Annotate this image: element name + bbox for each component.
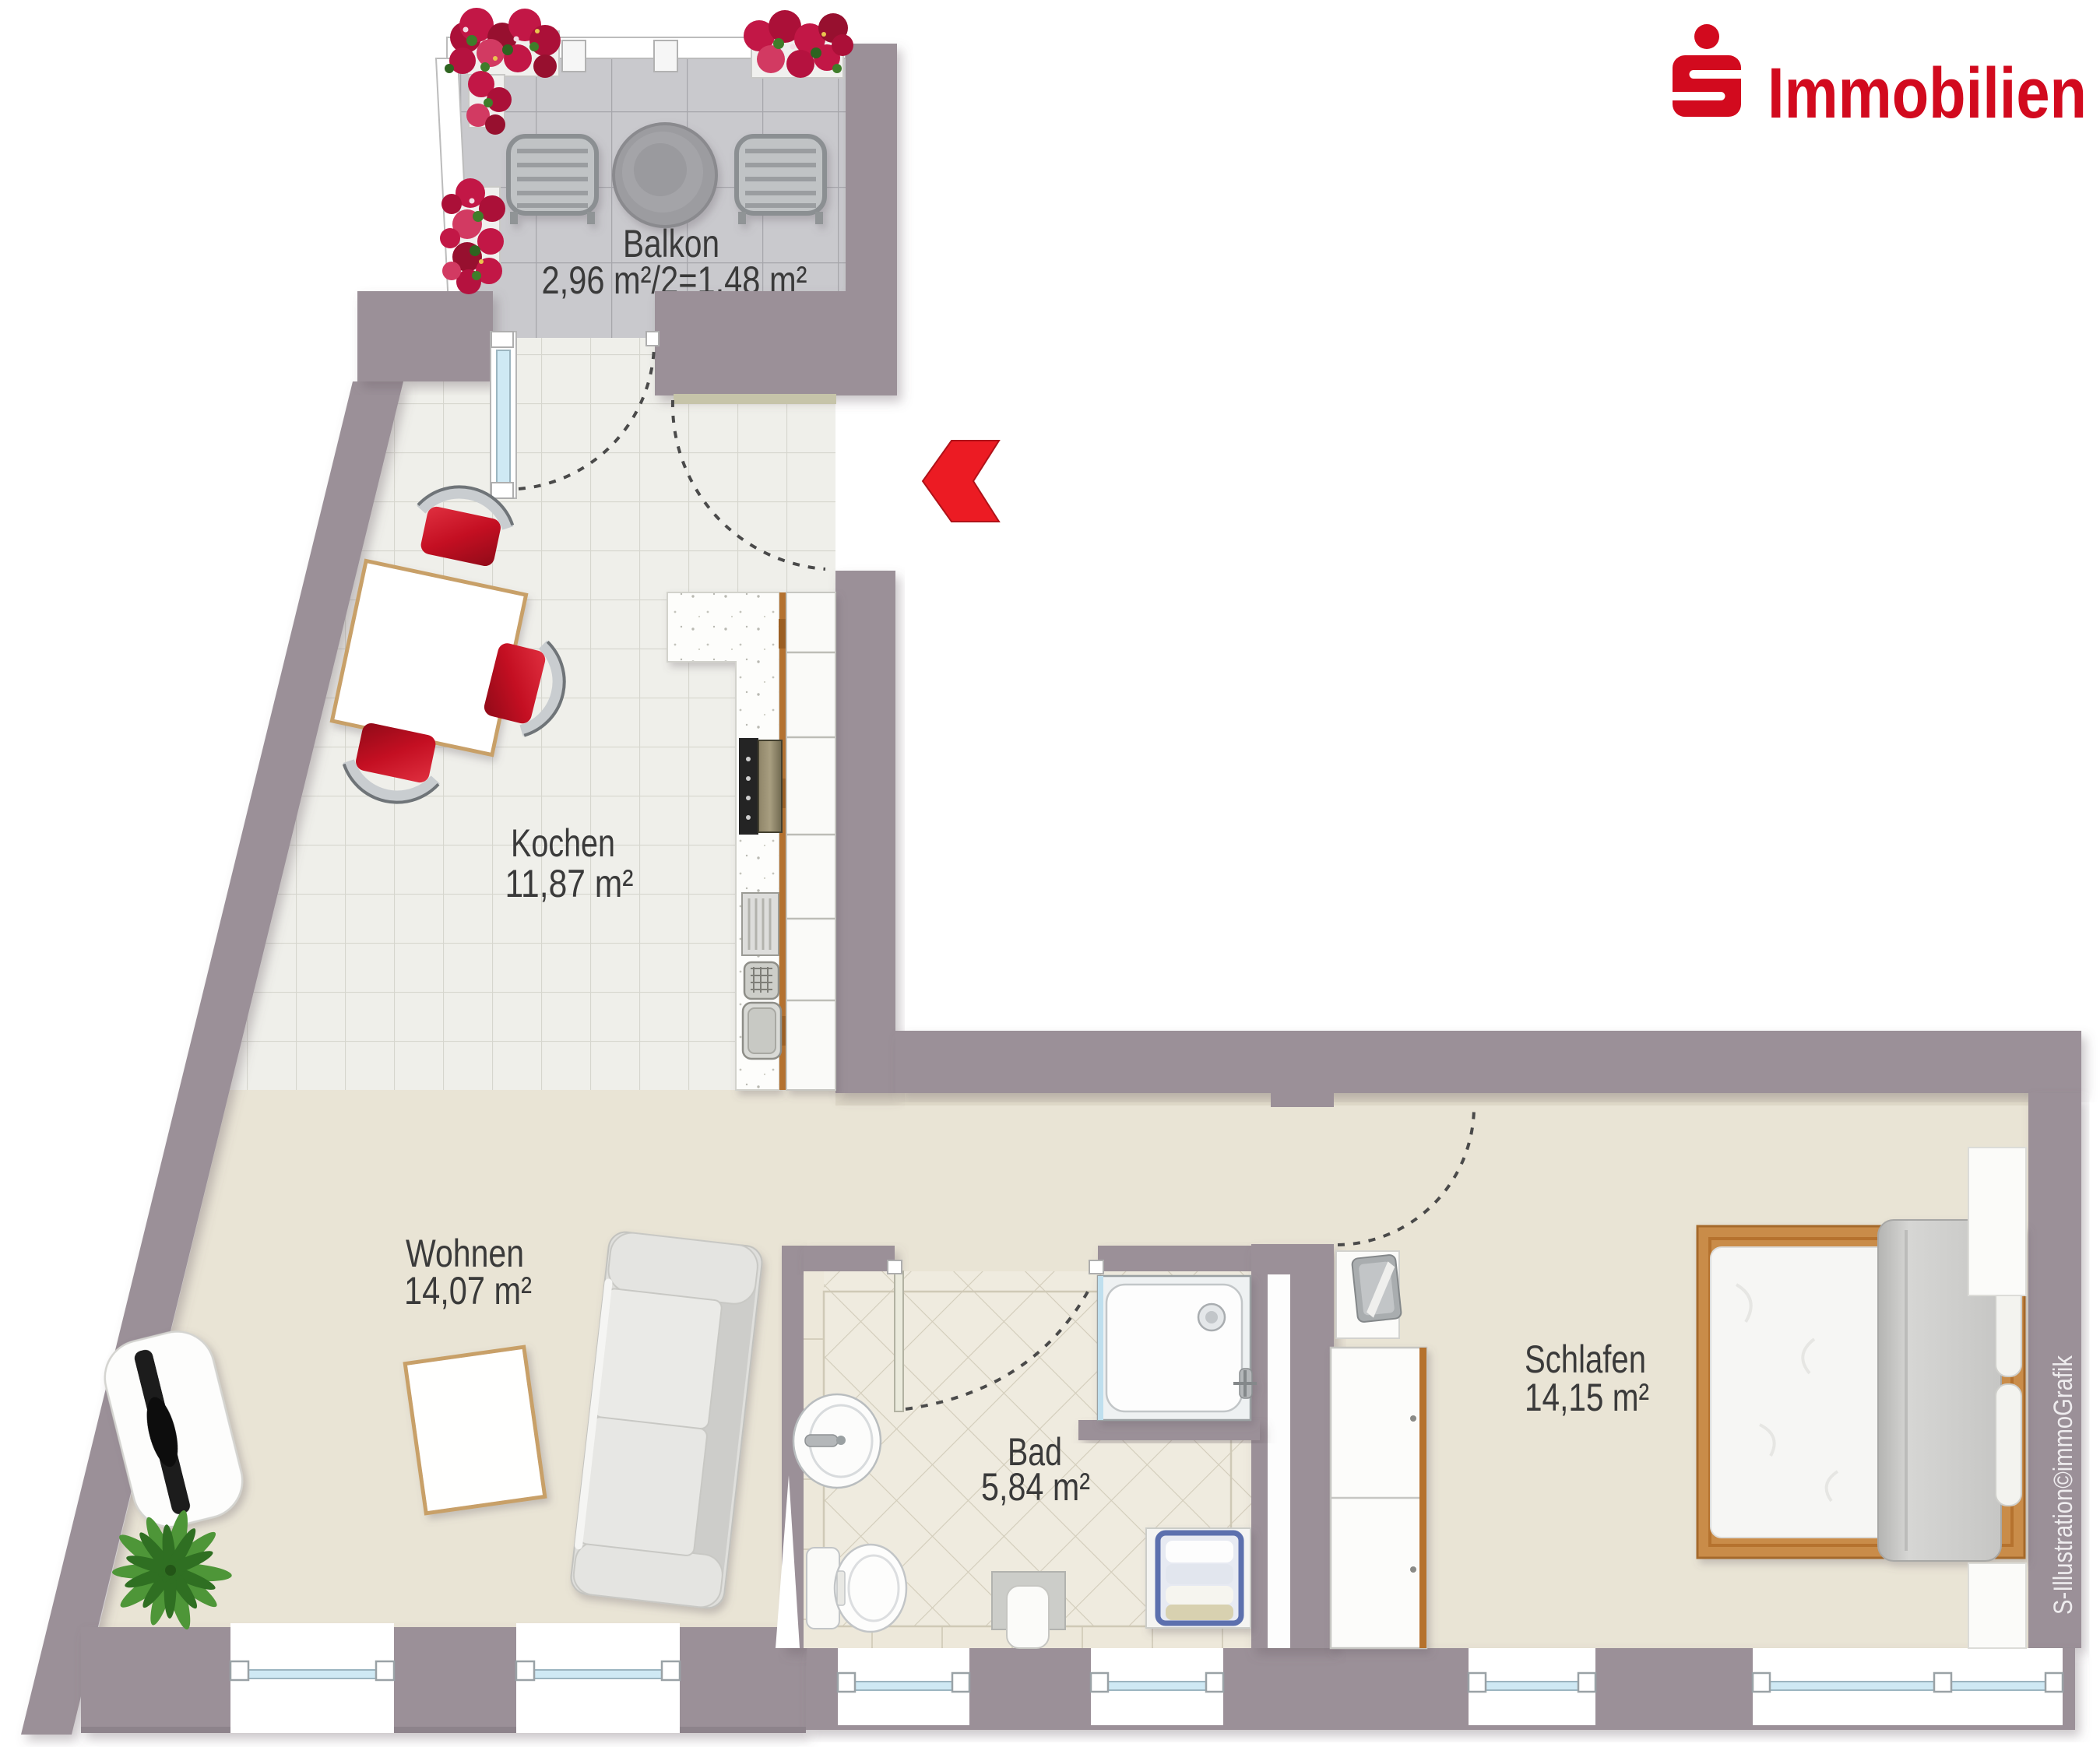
svg-text:Kochen: Kochen <box>511 821 615 865</box>
svg-text:Immobilien: Immobilien <box>1768 54 2087 133</box>
svg-text:S-Illustration©immoGrafik: S-Illustration©immoGrafik <box>2049 1355 2078 1615</box>
svg-text:Schlafen: Schlafen <box>1525 1337 1646 1381</box>
svg-text:14,07 m²: 14,07 m² <box>404 1269 532 1313</box>
svg-text:11,87 m²: 11,87 m² <box>505 862 634 905</box>
svg-text:14,15 m²: 14,15 m² <box>1525 1376 1649 1419</box>
svg-text:5,84 m²: 5,84 m² <box>981 1465 1090 1509</box>
